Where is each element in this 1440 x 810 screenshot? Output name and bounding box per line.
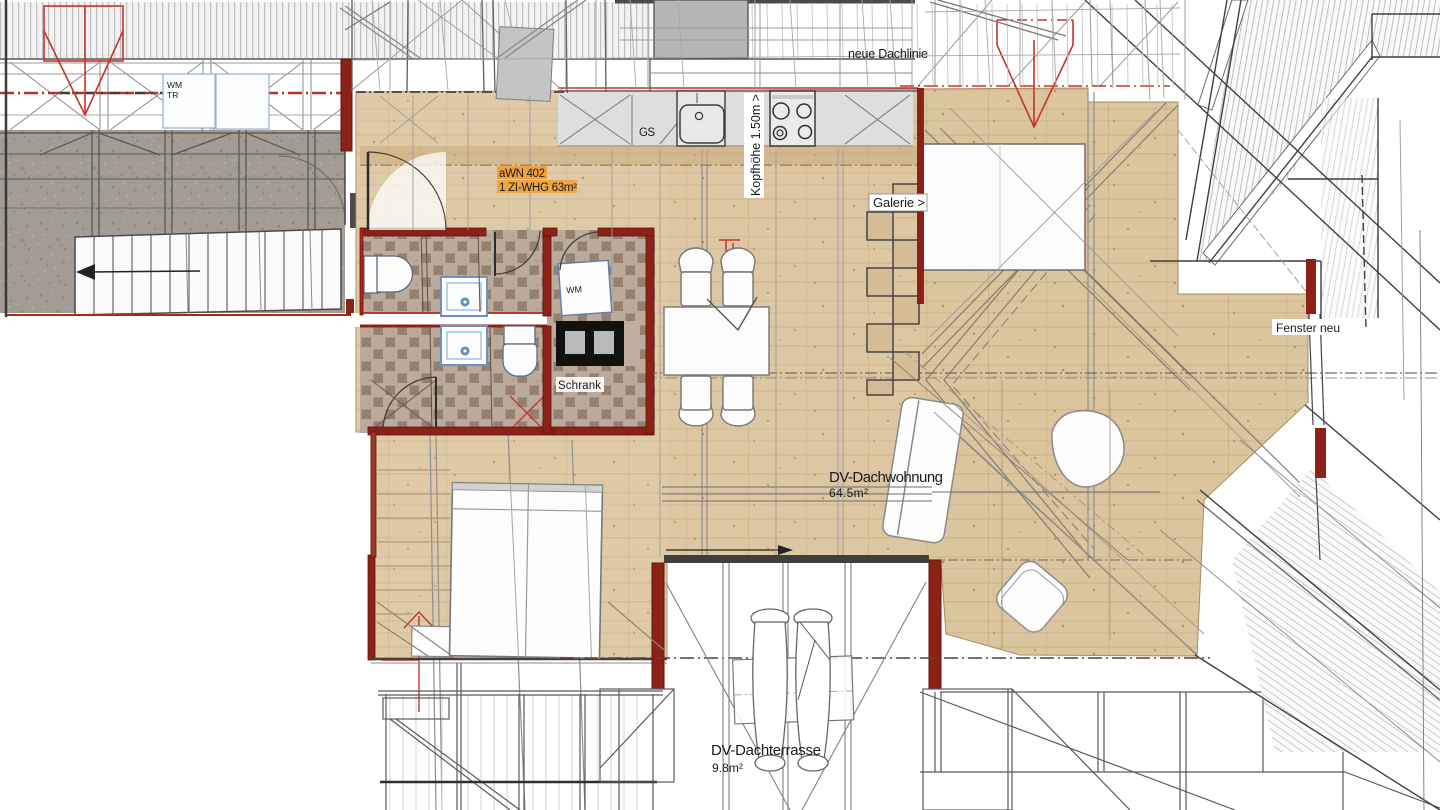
svg-text:DV-Dachwohnung: DV-Dachwohnung	[829, 469, 943, 486]
svg-text:Fenster neu: Fenster neu	[1276, 321, 1340, 335]
svg-text:Kopfhöhe 1.50m >: Kopfhöhe 1.50m >	[749, 94, 763, 196]
svg-text:GS: GS	[639, 127, 655, 139]
svg-text:1 ZI-WHG 63m²: 1 ZI-WHG 63m²	[499, 182, 577, 194]
svg-text:Galerie >: Galerie >	[873, 195, 925, 210]
svg-text:WM: WM	[566, 284, 583, 295]
svg-text:9.8m²: 9.8m²	[712, 761, 743, 775]
svg-text:neue Dachlinie: neue Dachlinie	[848, 47, 928, 61]
svg-text:Schrank: Schrank	[558, 380, 601, 392]
svg-text:64.5m²: 64.5m²	[829, 486, 868, 500]
svg-text:DV-Dachterrasse: DV-Dachterrasse	[711, 742, 821, 759]
svg-text:aWN 402: aWN 402	[499, 168, 545, 180]
svg-text:WM: WM	[167, 80, 182, 90]
svg-text:TR: TR	[167, 90, 178, 100]
